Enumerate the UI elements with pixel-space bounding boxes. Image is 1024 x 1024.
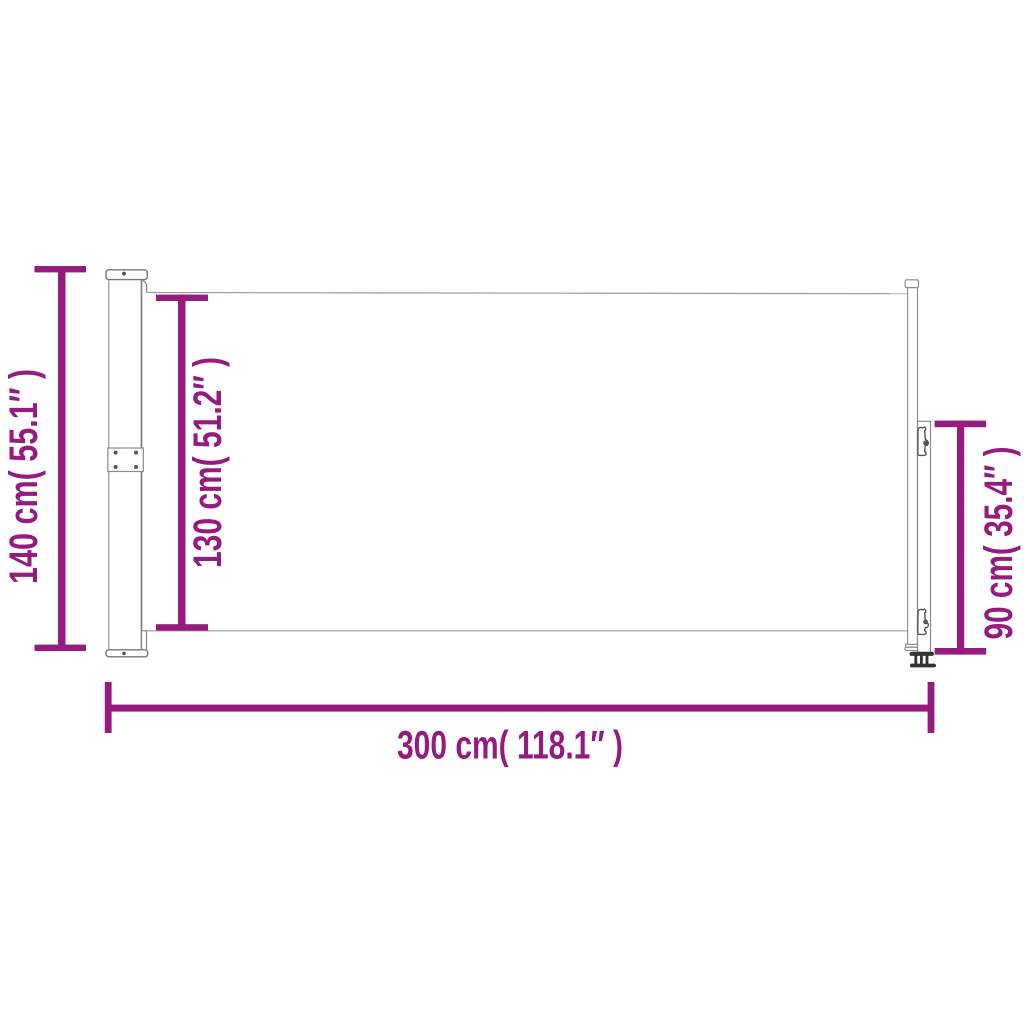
svg-text:300 cm( 118.1″ ): 300 cm( 118.1″ ) [397,724,623,768]
svg-text:140 cm( 55.1″ ): 140 cm( 55.1″ ) [2,369,46,584]
svg-text:130 cm( 51.2″ ): 130 cm( 51.2″ ) [186,357,230,568]
svg-text:90 cm( 35.4″ ): 90 cm( 35.4″ ) [977,447,1021,640]
